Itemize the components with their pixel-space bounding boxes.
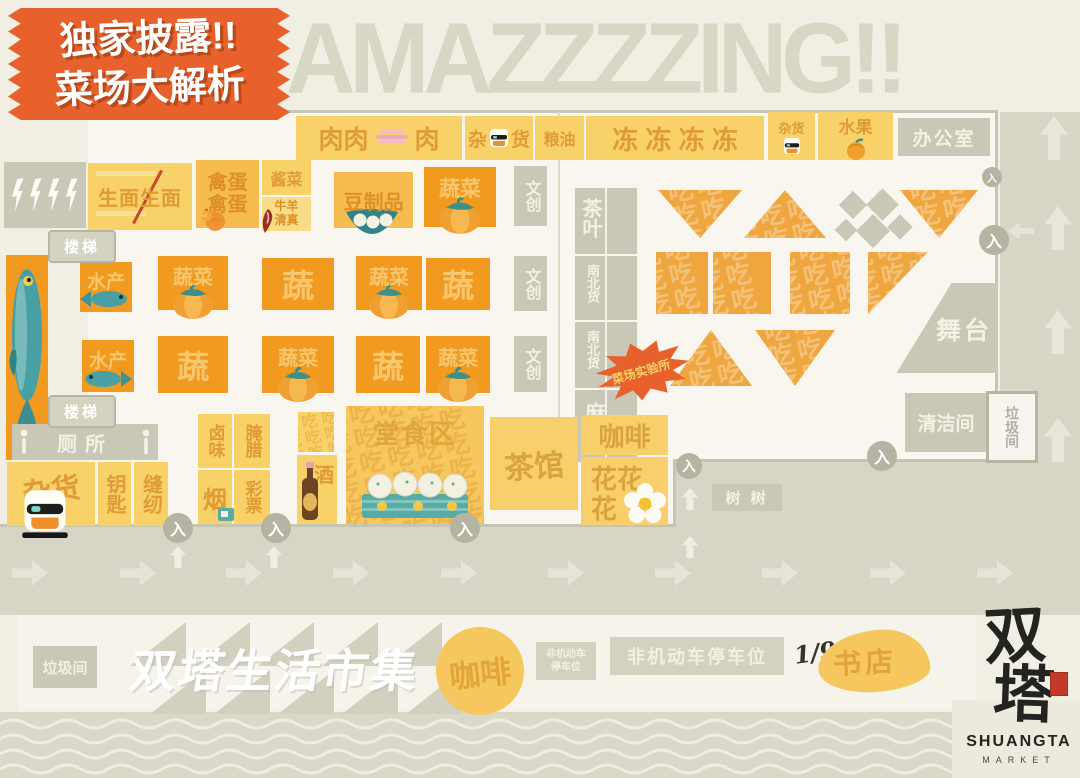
market-title-group: 双塔生活市集 xyxy=(110,620,440,716)
wall-notch-h xyxy=(675,459,998,462)
stairs-tab-2: 楼梯 xyxy=(48,395,116,428)
trash-room-bottom: 垃圾间 xyxy=(33,646,97,688)
aquatic-label: 水产 xyxy=(87,267,125,294)
nb-goods-label: 南北货 xyxy=(583,330,602,369)
buns-basket-icon xyxy=(360,464,470,522)
trees-area: 树 树 xyxy=(712,484,782,511)
toilet-figure-icon xyxy=(20,429,28,455)
aquatic-label: 水产 xyxy=(89,346,127,373)
beer-bottle-icon xyxy=(299,462,321,522)
bookstore-label: 书店 xyxy=(832,640,898,683)
pickles-label: 酱菜 xyxy=(270,166,302,190)
cleaning-label: 清洁间 xyxy=(917,409,974,436)
cultural-label: 文创 xyxy=(519,180,543,212)
parking-large-label: 非机动车停车位 xyxy=(627,643,767,669)
halal-label-1: 牛羊 xyxy=(274,200,298,214)
wall-corridor xyxy=(558,112,560,460)
stall-keys: 钥匙 xyxy=(98,462,131,526)
stall-veg-f: 蔬菜 xyxy=(262,336,334,393)
lottery-machine-icon xyxy=(218,504,234,522)
tea-label: 茶叶 xyxy=(579,198,601,238)
orange-fruit-icon xyxy=(843,138,869,160)
noodles-label: 生面生面 xyxy=(98,182,182,211)
seal-icon xyxy=(1050,672,1068,696)
chi-pattern: 吃吃吃吃吃吃吃吃吃吃吃吃吃吃吃吃吃吃吃吃吃吃吃吃吃吃吃吃吃吃吃吃吃吃吃吃吃吃吃吃… xyxy=(656,252,708,314)
dining-label: 堂食区 xyxy=(346,414,484,451)
chi-mini-block: 吃吃吃吃吃吃吃吃吃吃吃吃吃吃吃吃吃吃吃吃吃吃吃吃吃吃吃吃吃吃吃吃吃吃吃吃吃吃吃吃… xyxy=(298,412,334,452)
stall-veg-d: 蔬 xyxy=(426,258,490,310)
stall-cultural-3: 文创 xyxy=(514,336,547,392)
parking-large: 非机动车停车位 xyxy=(610,637,784,675)
veg-short-label: 蔬 xyxy=(177,342,209,388)
chi-pattern: 吃吃吃吃吃吃吃吃吃吃吃吃吃吃吃吃吃吃吃吃吃吃吃吃吃吃吃吃吃吃吃吃吃吃吃吃吃吃吃吃… xyxy=(790,252,850,314)
noodle-machine-icon xyxy=(96,171,156,176)
stall-meat: 肉肉 肉 xyxy=(296,116,462,160)
sewing-label: 缝纫 xyxy=(137,474,166,514)
stall-pickles: 酱菜 xyxy=(262,160,311,195)
stall-tea: 茶叶 xyxy=(575,188,637,254)
stairs-label: 楼梯 xyxy=(64,401,100,422)
entrance-marker: 入 xyxy=(676,453,702,479)
stall-veg-g: 蔬 xyxy=(356,336,420,393)
ribbon-badge: 独家披露!! 菜场大解析 xyxy=(8,8,290,120)
stall-sewing: 缝纫 xyxy=(134,462,168,526)
entrance-label: 入 xyxy=(457,516,473,540)
entrance-label: 入 xyxy=(170,516,186,540)
cultural-label: 文创 xyxy=(519,268,543,300)
entrance-marker: 入 xyxy=(979,225,1009,255)
entrance-marker: 入 xyxy=(867,441,897,471)
utility-block xyxy=(4,162,86,228)
veg-label: 蔬菜 xyxy=(369,261,409,290)
entrance-marker: 入 xyxy=(982,167,1002,187)
stall-halal: 牛羊 清真 xyxy=(262,197,311,231)
badge-line2: 菜场大解析 xyxy=(54,61,246,117)
stall-grocery-top: 杂 货 xyxy=(465,116,533,160)
trash-room-right: 垃圾间 xyxy=(986,391,1038,463)
brand-logo: 双 塔 SHUANGTA MARKET xyxy=(958,596,1080,776)
food-court-square: 吃吃吃吃吃吃吃吃吃吃吃吃吃吃吃吃吃吃吃吃吃吃吃吃吃吃吃吃吃吃吃吃吃吃吃吃吃吃吃吃… xyxy=(656,252,708,314)
stall-frozen: 冻 冻 冻 冻 xyxy=(586,116,764,160)
parking-small: 非机动车 停车位 xyxy=(536,642,596,680)
stall-tobacco: 烟 xyxy=(198,470,232,524)
veg-label: 蔬菜 xyxy=(278,342,318,371)
coffee-cell: 咖啡 xyxy=(581,415,668,455)
stall-cured: 腌腊 xyxy=(234,414,270,468)
coffee-spot: 咖啡 xyxy=(436,627,524,715)
stall-grocery-small: 杂货 xyxy=(768,112,815,160)
chi-pattern: 吃吃吃吃吃吃吃吃吃吃吃吃吃吃吃吃吃吃吃吃吃吃吃吃吃吃吃吃吃吃吃吃吃吃吃吃吃吃吃吃… xyxy=(298,412,334,452)
stall-braised: 卤味 xyxy=(198,414,232,468)
veg-label: 蔬菜 xyxy=(173,261,213,290)
divider xyxy=(605,188,607,254)
logo-name: SHUANGTA xyxy=(966,733,1071,751)
stall-aquatic-2: 水产 xyxy=(82,340,134,392)
veg-short-label: 蔬 xyxy=(372,342,404,388)
entrance-label: 入 xyxy=(987,170,997,185)
entrance-marker: 入 xyxy=(261,513,291,543)
stall-fruit: 水果 xyxy=(818,112,893,160)
flowers-label-2: 花 xyxy=(591,489,617,526)
market-title: 双塔生活市集 xyxy=(103,620,446,716)
veg-short-label: 蔬 xyxy=(282,261,314,307)
stall-tofu: 豆制品 xyxy=(334,172,413,228)
meat-slices-icon xyxy=(376,130,408,146)
grain-oil-label: 粮油 xyxy=(543,126,575,150)
stall-noodles: 生面生面 xyxy=(88,163,192,230)
stall-meat-label2: 肉 xyxy=(415,120,440,156)
stall-nb-goods-1: 南北货 xyxy=(575,256,637,320)
stall-grain-oil: 粮油 xyxy=(535,116,584,160)
stall-veg-b: 蔬 xyxy=(262,258,334,310)
entrance-label: 入 xyxy=(682,456,696,476)
fruit-label: 水果 xyxy=(839,113,873,138)
parking-small-label-1: 非机动车 xyxy=(546,648,586,661)
chicken-icon xyxy=(198,206,228,232)
logo-char-2: 塔 xyxy=(992,665,1056,726)
food-court-square: 吃吃吃吃吃吃吃吃吃吃吃吃吃吃吃吃吃吃吃吃吃吃吃吃吃吃吃吃吃吃吃吃吃吃吃吃吃吃吃吃… xyxy=(713,252,771,314)
food-court-square: 吃吃吃吃吃吃吃吃吃吃吃吃吃吃吃吃吃吃吃吃吃吃吃吃吃吃吃吃吃吃吃吃吃吃吃吃吃吃吃吃… xyxy=(790,252,850,314)
duck-icon xyxy=(489,128,509,148)
eggs-label: 禽蛋 xyxy=(208,172,248,194)
tofu-label: 豆制品 xyxy=(344,186,404,215)
stall-office: 办公室 xyxy=(898,118,990,156)
entrance-label: 入 xyxy=(268,516,284,540)
flower-icon xyxy=(624,483,666,525)
keys-label: 钥匙 xyxy=(100,474,129,514)
teahouse-label: 茶馆 xyxy=(503,439,566,487)
divider xyxy=(605,322,607,388)
stall-veg-a: 蔬菜 xyxy=(158,256,228,310)
lab-label: 菜场实验所 xyxy=(610,355,672,388)
grocery-label-b: 货 xyxy=(511,125,530,152)
stall-lottery: 彩票 xyxy=(234,470,270,524)
badge-line1: 独家披露!! xyxy=(59,12,238,68)
stairs-tab-1: 楼梯 xyxy=(48,230,116,263)
cured-label: 腌腊 xyxy=(240,424,265,458)
dining-area: 吃吃吃吃吃吃吃吃吃吃吃吃吃吃吃吃吃吃吃吃吃吃吃吃吃吃吃吃吃吃吃吃吃吃吃吃吃吃吃吃… xyxy=(346,406,484,524)
stall-veg: 蔬菜 xyxy=(424,167,496,227)
toilet-label: 厕所 xyxy=(57,428,113,457)
duck-icon xyxy=(22,488,68,538)
grocery-small-label: 杂货 xyxy=(778,118,804,137)
chi-pattern: 吃吃吃吃吃吃吃吃吃吃吃吃吃吃吃吃吃吃吃吃吃吃吃吃吃吃吃吃吃吃吃吃吃吃吃吃吃吃吃吃… xyxy=(713,252,771,314)
frozen-label: 冻 冻 冻 冻 xyxy=(612,120,738,157)
market-map-canvas: 独家披露!! 菜场大解析 AMAZZZZING!! 肉肉 肉 杂 货 粮油 冻 … xyxy=(0,0,1080,778)
entrance-label: 入 xyxy=(874,444,890,468)
trash-label: 垃圾间 xyxy=(1002,406,1022,448)
stall-veg-c: 蔬菜 xyxy=(356,256,422,310)
stall-veg-e: 蔬 xyxy=(158,336,228,393)
trash-bottom-label: 垃圾间 xyxy=(42,657,87,678)
teahouse: 茶馆 xyxy=(490,417,578,510)
stall-cultural-2: 文创 xyxy=(514,256,547,311)
lightning-icon xyxy=(44,178,64,212)
stall-aquatic-1: 水产 xyxy=(80,262,132,312)
grocery-label-a: 杂 xyxy=(468,125,487,152)
raw-meat-icon xyxy=(260,205,276,237)
lightning-icon xyxy=(8,178,28,212)
stall-eggs: 禽蛋 禽蛋 xyxy=(196,160,259,228)
braised-label: 卤味 xyxy=(203,424,228,458)
cultural-label: 文创 xyxy=(519,348,543,380)
toilet-figure-icon xyxy=(142,429,150,455)
stall-cultural-1: 文创 xyxy=(514,166,547,226)
stall-veg-h: 蔬菜 xyxy=(426,336,490,393)
veg-label: 蔬菜 xyxy=(438,342,478,371)
bottom-road xyxy=(0,527,1080,615)
lightning-icon xyxy=(62,178,82,212)
wave-pattern xyxy=(0,712,1080,778)
lottery-label: 彩票 xyxy=(240,480,265,514)
stage-label: 舞台 xyxy=(936,311,992,347)
stall-alcohol: 酒 xyxy=(297,455,337,524)
entrance-label: 入 xyxy=(986,228,1002,252)
entrance-marker: 入 xyxy=(450,513,480,543)
trees-label: 树 树 xyxy=(725,487,768,508)
coffee-label: 咖啡 xyxy=(598,417,650,454)
cleaning-room: 清洁间 xyxy=(905,393,987,452)
lightning-icon xyxy=(26,178,46,212)
flowers-cell: 花花 花 xyxy=(581,457,668,525)
veg-label: 蔬菜 xyxy=(439,173,481,203)
logo-sub: MARKET xyxy=(982,755,1056,765)
page-title: AMAZZZZING!! xyxy=(286,2,902,116)
veg-short-label: 蔬 xyxy=(442,261,474,307)
parking-small-label-2: 停车位 xyxy=(551,661,581,674)
toilet-area: 厕所 xyxy=(12,424,158,460)
entrance-marker: 入 xyxy=(163,513,193,543)
coffee-spot-label: 咖啡 xyxy=(447,645,513,696)
duck-icon xyxy=(783,137,801,155)
stairs-label: 楼梯 xyxy=(64,236,100,257)
divider xyxy=(605,256,607,320)
wave-band xyxy=(0,712,1080,778)
halal-label-2: 清真 xyxy=(274,214,298,228)
nb-goods-label: 南北货 xyxy=(583,264,602,303)
office-label: 办公室 xyxy=(912,124,975,151)
stall-meat-label: 肉肉 xyxy=(318,120,368,156)
